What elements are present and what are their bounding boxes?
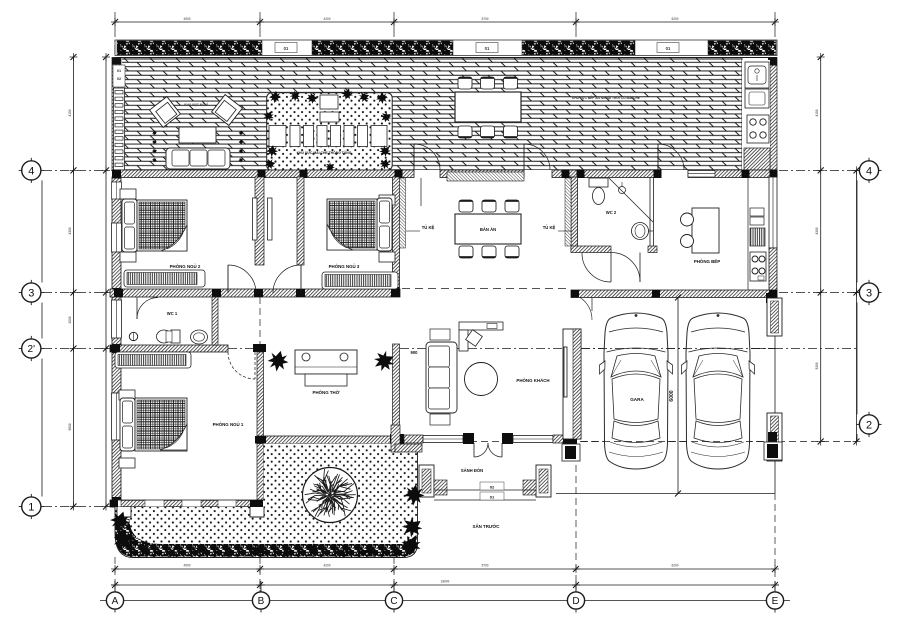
svg-text:4150: 4150 <box>815 109 819 116</box>
svg-text:6200: 6200 <box>671 17 678 21</box>
svg-text:02: 02 <box>490 485 495 490</box>
svg-text:4150: 4150 <box>68 109 72 116</box>
svg-text:PHÒNG NGỦ 1: PHÒNG NGỦ 1 <box>213 422 244 427</box>
svg-text:PHÒNG NGỦ 2: PHÒNG NGỦ 2 <box>170 264 201 269</box>
svg-text:4300: 4300 <box>68 227 72 234</box>
svg-text:6000: 6000 <box>669 390 675 401</box>
svg-text:02: 02 <box>117 77 121 81</box>
svg-text:6200: 6200 <box>671 564 678 568</box>
svg-text:WC 1: WC 1 <box>167 311 178 316</box>
svg-text:3: 3 <box>866 287 872 299</box>
svg-text:WC 2: WC 2 <box>606 210 617 215</box>
svg-text:2000: 2000 <box>68 316 72 323</box>
svg-text:A: A <box>112 596 119 607</box>
svg-text:SÂN TRƯỚC: SÂN TRƯỚC <box>473 524 501 529</box>
svg-text:1: 1 <box>28 501 34 513</box>
svg-text:2': 2' <box>28 344 36 355</box>
svg-text:01: 01 <box>284 46 289 51</box>
svg-text:GARA: GARA <box>630 397 644 402</box>
svg-text:3: 3 <box>28 287 34 299</box>
svg-text:KHU VỰC BẾP ĂN NGOÀI TRỜI CÓ M: KHU VỰC BẾP ĂN NGOÀI TRỜI CÓ MÁI CHE <box>572 95 640 100</box>
svg-text:5300: 5300 <box>815 362 819 369</box>
svg-text:C: C <box>390 596 397 607</box>
svg-text:PHÒNG NGỦ 3: PHÒNG NGỦ 3 <box>329 264 360 269</box>
svg-text:D: D <box>572 596 579 607</box>
svg-text:2: 2 <box>866 419 872 431</box>
svg-text:TỦ KỆ: TỦ KỆ <box>543 225 556 230</box>
svg-text:01: 01 <box>490 495 495 500</box>
svg-text:4: 4 <box>28 165 34 177</box>
svg-text:4200: 4200 <box>323 17 330 21</box>
svg-text:PHÒNG KHÁCH: PHÒNG KHÁCH <box>516 378 549 383</box>
svg-text:900: 900 <box>411 350 419 355</box>
svg-text:4300: 4300 <box>815 227 819 234</box>
svg-text:KHU VỰC NGHỈ: KHU VỰC NGHỈ <box>184 102 208 107</box>
svg-text:PHÒNG BẾP: PHÒNG BẾP <box>694 259 720 264</box>
svg-text:01: 01 <box>117 69 121 73</box>
svg-text:PHÒNG THỜ: PHÒNG THỜ <box>313 390 340 395</box>
svg-text:01: 01 <box>485 46 490 51</box>
svg-text:SẢNH ĐÓN: SẢNH ĐÓN <box>461 468 483 473</box>
svg-text:TỦ KỆ: TỦ KỆ <box>422 225 435 230</box>
svg-text:E: E <box>772 596 779 607</box>
svg-text:01: 01 <box>666 46 671 51</box>
svg-text:4500: 4500 <box>183 17 190 21</box>
svg-text:4500: 4500 <box>183 564 190 568</box>
svg-text:4: 4 <box>866 165 872 177</box>
svg-text:5700: 5700 <box>481 564 488 568</box>
svg-text:5700: 5700 <box>481 17 488 21</box>
svg-text:5600: 5600 <box>68 423 72 430</box>
svg-text:B: B <box>258 596 265 607</box>
svg-text:KHU VỰC MÁI CHE THÔNG TẦNG: KHU VỰC MÁI CHE THÔNG TẦNG <box>297 150 352 155</box>
svg-text:BÀN ĂN: BÀN ĂN <box>480 227 496 232</box>
svg-text:18600: 18600 <box>441 580 450 584</box>
svg-text:4200: 4200 <box>323 564 330 568</box>
